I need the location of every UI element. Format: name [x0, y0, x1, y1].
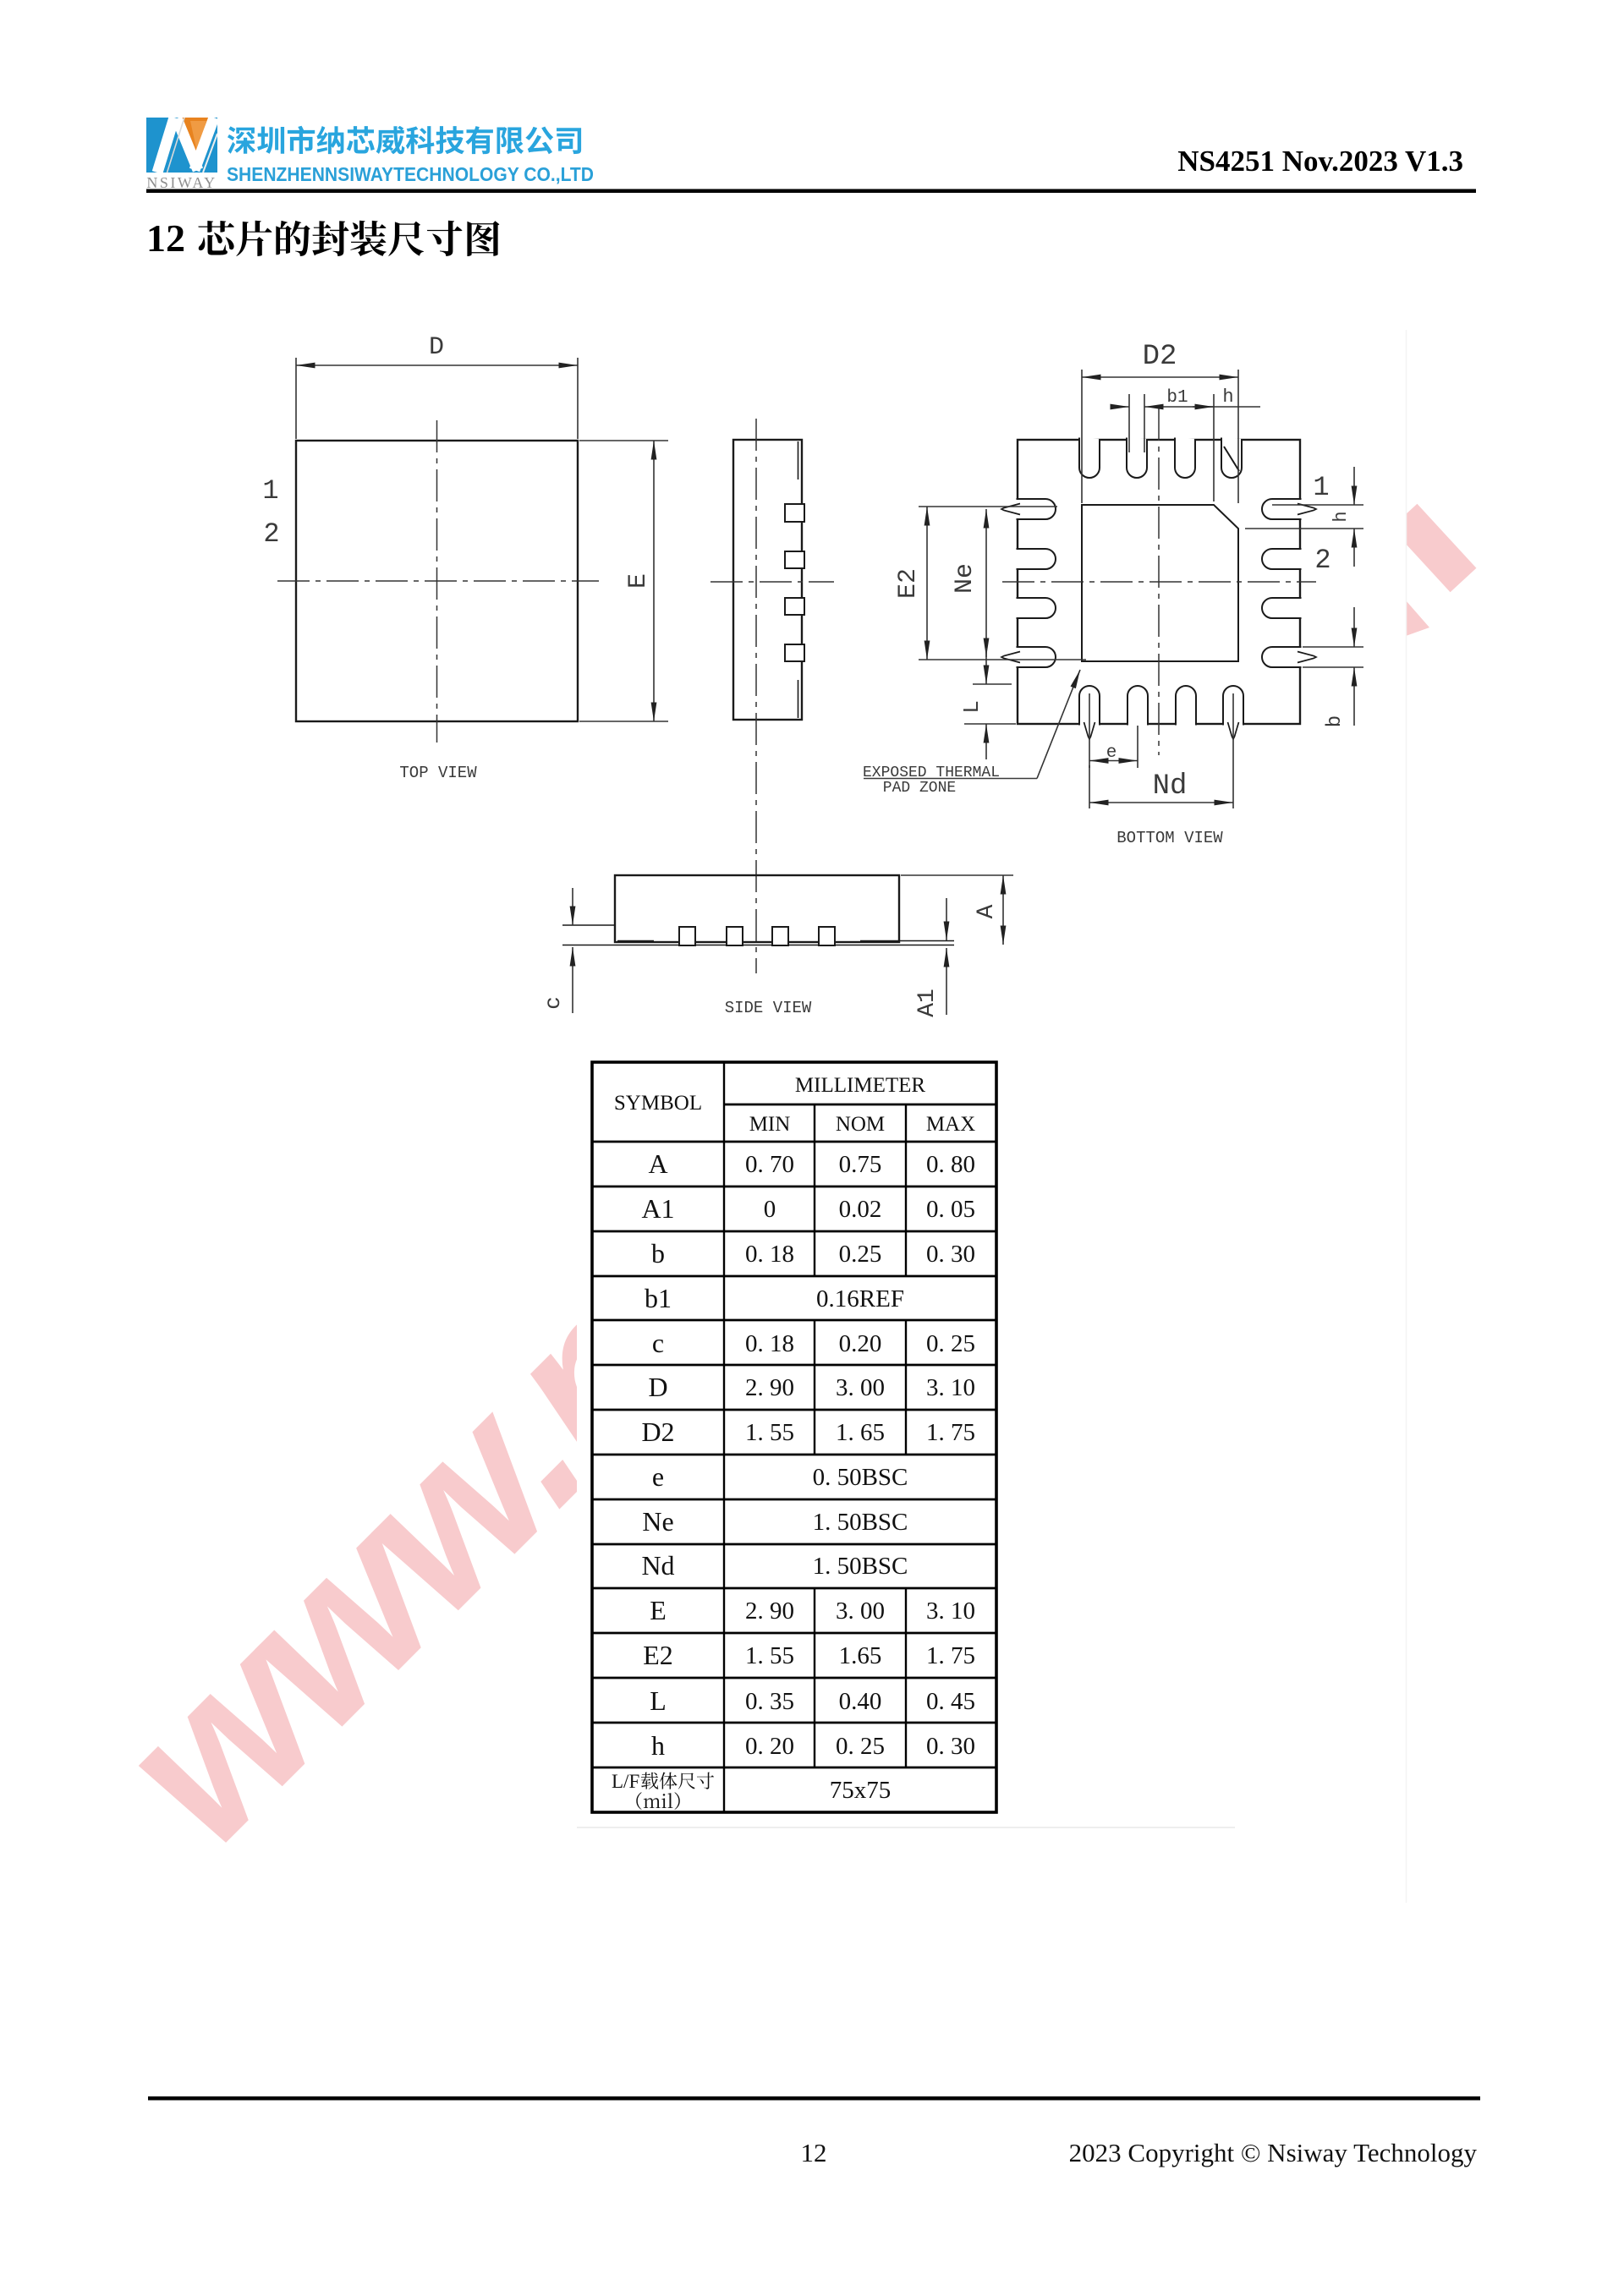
svg-text:E: E — [624, 573, 653, 589]
svg-text:0: 0 — [764, 1196, 776, 1223]
svg-text:1. 50BSC: 1. 50BSC — [813, 1553, 908, 1580]
svg-text:1. 50BSC: 1. 50BSC — [813, 1509, 908, 1536]
svg-text:BOTTOM VIEW: BOTTOM VIEW — [1116, 829, 1223, 847]
svg-text:2: 2 — [263, 518, 279, 550]
svg-text:e: e — [652, 1461, 664, 1492]
svg-text:0. 18: 0. 18 — [745, 1241, 794, 1268]
svg-text:0. 30: 0. 30 — [926, 1733, 975, 1760]
svg-text:0.40: 0.40 — [839, 1688, 882, 1715]
svg-text:D: D — [648, 1372, 667, 1402]
svg-text:2023 Copyright © Nsiway Techno: 2023 Copyright © Nsiway Technology — [1069, 2138, 1478, 2167]
svg-text:NS4251 Nov.2023 V1.3: NS4251 Nov.2023 V1.3 — [1177, 145, 1463, 178]
svg-text:L: L — [959, 700, 985, 714]
svg-text:A1: A1 — [641, 1193, 674, 1224]
svg-text:Ne: Ne — [951, 563, 979, 594]
svg-text:E2: E2 — [643, 1640, 673, 1670]
svg-text:b1: b1 — [1166, 388, 1188, 408]
svg-text:MIN: MIN — [749, 1113, 791, 1136]
svg-text:D: D — [429, 333, 444, 362]
svg-text:2. 90: 2. 90 — [745, 1597, 794, 1625]
svg-text:TOP VIEW: TOP VIEW — [399, 764, 477, 782]
svg-text:L: L — [650, 1685, 667, 1716]
svg-text:b: b — [1324, 715, 1347, 727]
svg-text:c: c — [652, 1328, 664, 1358]
svg-text:b1: b1 — [645, 1283, 672, 1313]
svg-text:MAX: MAX — [926, 1113, 975, 1136]
svg-text:0. 05: 0. 05 — [926, 1196, 975, 1223]
svg-text:1. 55: 1. 55 — [745, 1642, 794, 1669]
svg-text:0. 30: 0. 30 — [926, 1241, 975, 1268]
svg-text:Nd: Nd — [1153, 770, 1188, 803]
svg-text:75x75: 75x75 — [830, 1777, 892, 1804]
svg-text:A1: A1 — [914, 989, 941, 1017]
svg-text:0. 35: 0. 35 — [745, 1688, 794, 1715]
svg-text:L/F: L/F — [612, 1771, 639, 1792]
svg-text:3. 10: 3. 10 — [926, 1374, 975, 1401]
svg-text:e: e — [1106, 743, 1117, 763]
svg-text:c: c — [540, 996, 566, 1010]
svg-text:3. 00: 3. 00 — [836, 1374, 885, 1401]
svg-text:PAD ZONE: PAD ZONE — [883, 780, 956, 797]
svg-text:0. 20: 0. 20 — [745, 1733, 794, 1760]
svg-text:0.16REF: 0.16REF — [816, 1285, 904, 1312]
svg-text:2. 90: 2. 90 — [745, 1374, 794, 1401]
svg-text:NSIWAY: NSIWAY — [146, 174, 217, 191]
svg-text:Ne: Ne — [642, 1506, 673, 1537]
svg-text:1. 55: 1. 55 — [745, 1419, 794, 1446]
svg-text:0. 80: 0. 80 — [926, 1151, 975, 1178]
svg-text:E2: E2 — [894, 568, 923, 599]
svg-text:Nd: Nd — [641, 1550, 674, 1581]
svg-text:h: h — [651, 1730, 665, 1761]
svg-text:NOM: NOM — [836, 1113, 885, 1136]
svg-text:0. 25: 0. 25 — [836, 1733, 885, 1760]
svg-text:1. 75: 1. 75 — [926, 1419, 975, 1446]
svg-text:1.65: 1.65 — [839, 1642, 882, 1669]
svg-text:SYMBOL: SYMBOL — [614, 1092, 702, 1115]
svg-text:12: 12 — [146, 216, 185, 260]
svg-text:SHENZHENNSIWAYTECHNOLOGY CO.,L: SHENZHENNSIWAYTECHNOLOGY CO.,LTD — [227, 163, 594, 185]
svg-text:D2: D2 — [1143, 341, 1177, 373]
svg-text:0. 18: 0. 18 — [745, 1330, 794, 1357]
svg-text:b: b — [651, 1238, 665, 1269]
svg-text:1. 75: 1. 75 — [926, 1642, 975, 1669]
svg-text:1: 1 — [262, 475, 278, 507]
svg-text:h: h — [1222, 386, 1233, 408]
svg-text:0.75: 0.75 — [839, 1151, 882, 1178]
svg-text:1. 65: 1. 65 — [836, 1419, 885, 1446]
svg-text:12: 12 — [801, 2138, 827, 2167]
svg-text:SIDE VIEW: SIDE VIEW — [725, 999, 812, 1017]
svg-text:0. 70: 0. 70 — [745, 1151, 794, 1178]
svg-text:E: E — [650, 1595, 667, 1625]
svg-text:h: h — [1330, 511, 1352, 522]
svg-text:0.25: 0.25 — [839, 1241, 882, 1268]
svg-text:A: A — [974, 904, 1000, 918]
svg-text:0. 45: 0. 45 — [926, 1688, 975, 1715]
svg-text:3. 10: 3. 10 — [926, 1597, 975, 1625]
svg-text:MILLIMETER: MILLIMETER — [795, 1074, 925, 1097]
svg-text:0.02: 0.02 — [839, 1196, 882, 1223]
svg-text:0. 25: 0. 25 — [926, 1330, 975, 1357]
svg-text:3. 00: 3. 00 — [836, 1597, 885, 1625]
svg-text:D2: D2 — [641, 1417, 674, 1447]
svg-text:0.20: 0.20 — [839, 1330, 882, 1357]
svg-text:A: A — [648, 1148, 667, 1179]
svg-text:1: 1 — [1313, 472, 1329, 503]
svg-text:0. 50BSC: 0. 50BSC — [813, 1464, 908, 1491]
svg-text:2: 2 — [1314, 545, 1330, 576]
